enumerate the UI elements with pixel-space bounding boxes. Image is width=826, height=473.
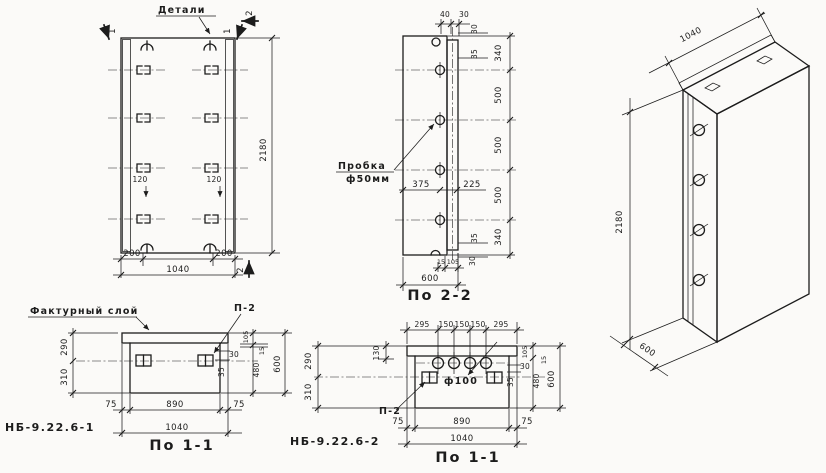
dim-225: 225 [463,180,480,190]
lifting-loop-bottom-right [204,244,216,253]
dim-30: 30 [229,350,239,359]
dim-75-left: 75 [392,417,404,427]
dim-500b: 500 [494,136,504,153]
dim-310: 310 [60,368,70,385]
cut-mark-2-top: 2 [245,10,255,16]
dim-35: 35 [217,367,226,377]
dim-150a: 150 [439,320,454,329]
dim-340b: 340 [494,228,504,245]
bottom-dims: 75 890 75 1040 [105,344,245,437]
dim-75-right: 75 [233,400,245,410]
side-edge-bottom-dims: 35 30 [458,233,488,266]
cut-mark-2-bottom: 2 [236,267,246,273]
dim-1040: 1040 [450,434,473,444]
dim-890: 890 [166,400,183,410]
lifting-loop-top-right [204,41,216,50]
dim-35: 35 [506,377,515,387]
side-375-225-dims: 375 225 [399,180,486,193]
dim-75-left: 75 [105,400,117,410]
dim-480: 480 [532,374,541,389]
plug-label-line1: Пробка [338,161,386,172]
round-voids [416,352,508,374]
dim-edge-left: 200 [123,249,140,259]
section-2-2-view: Пробка ф50мм 40 30 30 35 35 30 375 225 3… [336,10,516,304]
anchor-left [136,355,151,366]
dim-edge-30b: 30 [468,256,477,266]
iso-wide-face [717,66,809,342]
anchor-label-p2: П-2 [234,303,256,314]
dim-150b: 150 [455,320,470,329]
isometric-view: 1040 2180 600 [610,8,809,376]
bottom-dims: 75 890 75 1040 [392,357,533,448]
blueprint-page: 120 120 200 200 1040 2180 Детали 1 1 2 2 [0,0,826,473]
section-1-1-caption-right: По 1-1 [435,450,500,466]
dim-600: 600 [273,355,283,372]
dim-310: 310 [304,383,314,400]
dim-105: 105 [447,258,459,266]
dim-375: 375 [412,180,429,190]
left-dims: 290 310 [60,328,130,398]
dim-340a: 340 [494,44,504,61]
section-1-1-right: 295 150 150 150 295 ф100 П-2 130 290 310 [290,320,566,466]
hole-callout: ф100 [444,342,497,387]
facing-layer-strip [122,333,228,343]
dim-295-right: 295 [494,320,509,329]
cut-mark-1-right: 1 [223,28,233,34]
plug-callout: Пробка ф50мм [336,124,434,185]
side-foot-dims: 15 105 [433,253,464,272]
side-body-outline [403,36,447,255]
dim-anchor-offset-left: 120 [133,175,148,184]
dim-295-left: 295 [415,320,430,329]
dim-edge-30t: 30 [470,24,479,34]
dim-480: 480 [252,363,261,378]
facing-edge-strip-right [226,40,234,252]
details-callout: Детали [156,5,216,34]
loop-top [432,38,440,46]
dim-890: 890 [453,417,470,427]
dim-290: 290 [304,352,314,369]
dim-15: 15 [540,356,548,364]
dim-15: 15 [258,347,266,355]
iso-facing-layer-edge [683,90,688,322]
side-anchors [108,66,248,223]
panel-mark-1: НБ-9.22.6-1 [5,421,95,434]
dim-1040: 1040 [165,423,188,433]
anchor-right [487,372,502,383]
dim-150c: 150 [471,320,486,329]
lifting-loop-bottom-left [141,244,153,253]
front-height-dim: 2180 [236,35,280,256]
iso-depth-dim: 600 [610,336,717,376]
dim-edge-35b: 35 [470,233,479,243]
dim-600: 600 [547,370,557,387]
dim-105: 105 [521,346,529,358]
section-1-1-caption-left: По 1-1 [149,438,214,454]
dim-500a: 500 [494,86,504,103]
dim-15: 15 [437,258,445,266]
iso-width-dim: 1040 [649,8,775,90]
anchor-callout: П-2 [379,382,425,417]
details-label: Детали [158,5,206,16]
section-1-1-left: Фактурный слой П-2 290 310 105 15 480 60… [5,303,292,454]
body-outline [130,343,220,393]
dim-290: 290 [60,338,70,355]
section-2-2-caption: По 2-2 [407,288,472,304]
dim-edge-35t: 35 [470,49,479,59]
dim-130: 130 [372,346,381,361]
dim-75-right: 75 [521,417,533,427]
iso-height-dim: 2180 [615,90,683,350]
right-dims: 105 15 480 600 30 35 [215,329,292,397]
iso-dim-2180: 2180 [615,210,625,233]
panel-mark-2: НБ-9.22.6-2 [290,435,380,448]
plug-label-line2: ф50мм [346,174,390,185]
dim-edge-right: 200 [215,249,232,259]
dim-40: 40 [440,10,450,19]
dim-height: 2180 [259,138,269,161]
dim-30: 30 [459,10,469,19]
lifting-loop-top-left [141,41,153,50]
dim-105: 105 [242,331,250,343]
side-edge-top-dims: 30 35 [458,24,488,59]
dim-anchor-offset-right: 120 [207,175,222,184]
wall-panel-drawing: 120 120 200 200 1040 2180 Детали 1 1 2 2 [0,0,826,473]
facing-edge-strip-left [123,40,131,252]
cut-mark-1-left: 1 [108,28,118,34]
loop-bottom [431,251,440,256]
hole-label-f100: ф100 [444,376,478,387]
top-dims: 295 150 150 150 295 [400,320,524,356]
cut-mark-1-right-arrow [237,25,242,39]
anchor-right [198,355,213,366]
facing-layer-callout: Фактурный слой [28,306,149,330]
dim-depth-600: 600 [421,274,438,284]
facing-layer-label: Фактурный слой [30,306,138,317]
facing-layer-strip [407,346,517,356]
dim-30: 30 [520,362,530,371]
dim-500c: 500 [494,186,504,203]
dim-width-total: 1040 [166,265,189,275]
iso-dim-1040: 1040 [678,25,703,45]
anchor-left [422,372,437,383]
front-view: 120 120 200 200 1040 2180 Детали 1 1 2 2 [104,5,280,278]
